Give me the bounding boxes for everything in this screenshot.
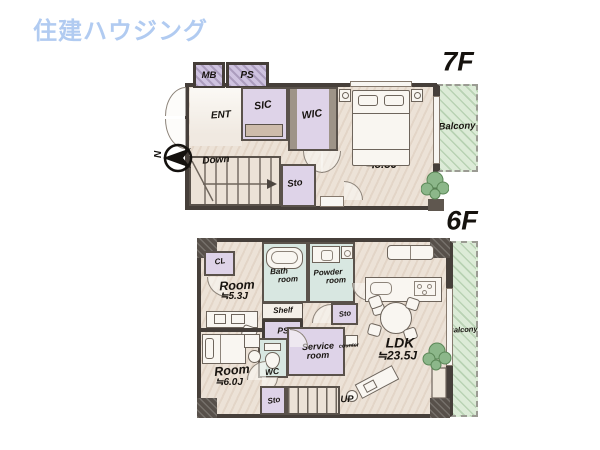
ldk-size: ≒23.5J [377,350,417,363]
stairs-up-icon [286,386,340,415]
laptop-icon [363,379,378,393]
bed-icon [202,334,246,364]
desk-item [231,314,245,324]
wc-label: WC [264,367,279,377]
column [430,398,450,418]
pillow-icon [205,338,214,359]
kitchen-sink [370,282,392,295]
up-label: UP [340,395,354,405]
sink-icon [312,246,340,263]
sto-mid-label: Sto [338,309,351,318]
floorplan-page: 住建ハウジング 7F Balcony MB PS ENT SIC WIC Roo… [0,0,600,450]
bath-label-2: room [278,275,298,284]
burner [417,284,422,289]
desk-item [214,314,226,324]
powder-label-2: room [326,276,346,285]
room2-6f-size: ≒6.0J [215,378,243,389]
washer-icon [341,246,353,259]
sofa-icon [387,245,434,260]
desk-icon [244,334,260,348]
sofa-cushion-line [410,246,411,259]
toilet-tank [264,343,281,351]
burner [422,290,427,295]
basin [321,250,333,261]
plant-icon [421,341,453,401]
cl-label: CL [214,257,226,267]
bathtub-inner [271,251,298,264]
column [197,398,217,418]
bed-line [220,335,221,363]
partition-wall [197,328,262,332]
shelf-label: Shelf [273,306,293,315]
floor-label-6f: 6F [446,206,478,237]
service-label-2: room [307,351,330,362]
floorplan-6f: 6F Balcony CL Room ≒5.3J Bath room [0,0,600,450]
room1-6f-size: ≒5.3J [220,292,248,303]
burner [427,284,432,289]
stove-icon [414,281,436,296]
washer-door [344,250,351,257]
